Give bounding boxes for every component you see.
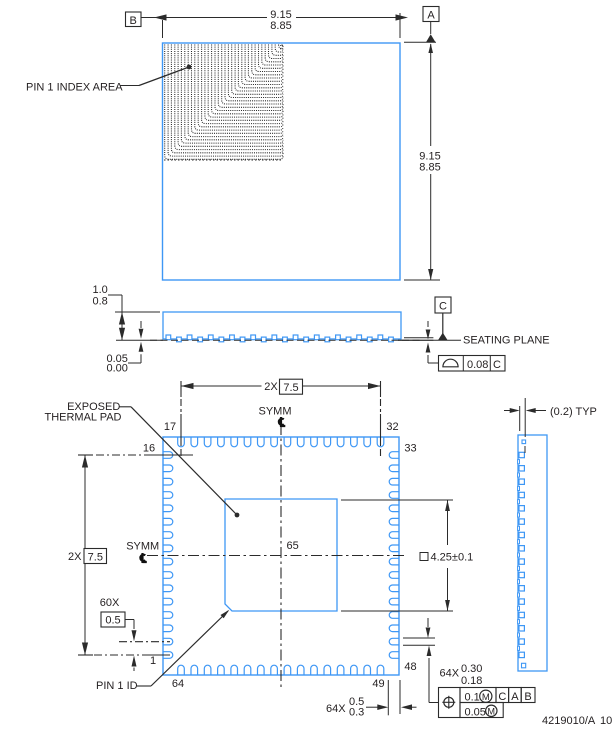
svg-text:0.00: 0.00 xyxy=(107,363,128,375)
svg-text:64X: 64X xyxy=(326,703,346,715)
svg-text:4219010/A: 4219010/A xyxy=(542,715,596,727)
svg-text:48: 48 xyxy=(404,661,416,673)
svg-text:PIN 1 INDEX AREA: PIN 1 INDEX AREA xyxy=(26,82,123,94)
svg-text:33: 33 xyxy=(404,443,416,455)
svg-text:SYMM: SYMM xyxy=(259,406,292,418)
svg-text:THERMAL PAD: THERMAL PAD xyxy=(44,412,121,424)
svg-text:10: 10 xyxy=(600,715,612,727)
svg-text:17: 17 xyxy=(164,421,176,433)
svg-text:M: M xyxy=(482,692,490,703)
svg-text:2X: 2X xyxy=(68,551,82,563)
svg-text:0.08: 0.08 xyxy=(467,359,488,371)
svg-text:65: 65 xyxy=(287,540,299,552)
svg-text:0.18: 0.18 xyxy=(461,675,482,687)
svg-text:C: C xyxy=(498,691,506,703)
svg-text:0.3: 0.3 xyxy=(349,707,364,719)
svg-text:16: 16 xyxy=(143,443,155,455)
svg-text:8.85: 8.85 xyxy=(419,162,440,174)
svg-text:1.0: 1.0 xyxy=(93,284,108,296)
svg-text:0.05: 0.05 xyxy=(465,706,486,718)
svg-text:B: B xyxy=(524,691,531,703)
svg-text:0.1: 0.1 xyxy=(465,691,480,703)
svg-text:SYMM: SYMM xyxy=(126,541,159,553)
svg-text:SEATING PLANE: SEATING PLANE xyxy=(463,335,550,347)
svg-text:C: C xyxy=(493,359,501,371)
svg-text:M: M xyxy=(488,706,496,716)
svg-text:49: 49 xyxy=(372,678,384,690)
svg-text:C: C xyxy=(439,301,447,313)
svg-text:64: 64 xyxy=(172,678,184,690)
svg-text:A: A xyxy=(511,691,519,703)
svg-text:0.30: 0.30 xyxy=(461,663,482,675)
svg-text:7.5: 7.5 xyxy=(88,552,103,564)
svg-text:4.25±0.1: 4.25±0.1 xyxy=(431,552,474,564)
svg-text:A: A xyxy=(427,10,435,22)
svg-text:1: 1 xyxy=(150,655,156,667)
svg-text:64X: 64X xyxy=(440,668,460,680)
svg-text:32: 32 xyxy=(386,421,398,433)
svg-text:(0.2) TYP: (0.2) TYP xyxy=(550,406,597,418)
svg-text:8.85: 8.85 xyxy=(270,20,291,32)
svg-text:60X: 60X xyxy=(100,597,120,609)
svg-text:PIN 1 ID: PIN 1 ID xyxy=(96,680,138,692)
svg-text:0.5: 0.5 xyxy=(105,615,120,627)
svg-text:2X: 2X xyxy=(264,381,278,393)
svg-text:7.5: 7.5 xyxy=(283,382,298,394)
svg-text:B: B xyxy=(130,15,137,27)
svg-text:0.8: 0.8 xyxy=(93,295,108,307)
